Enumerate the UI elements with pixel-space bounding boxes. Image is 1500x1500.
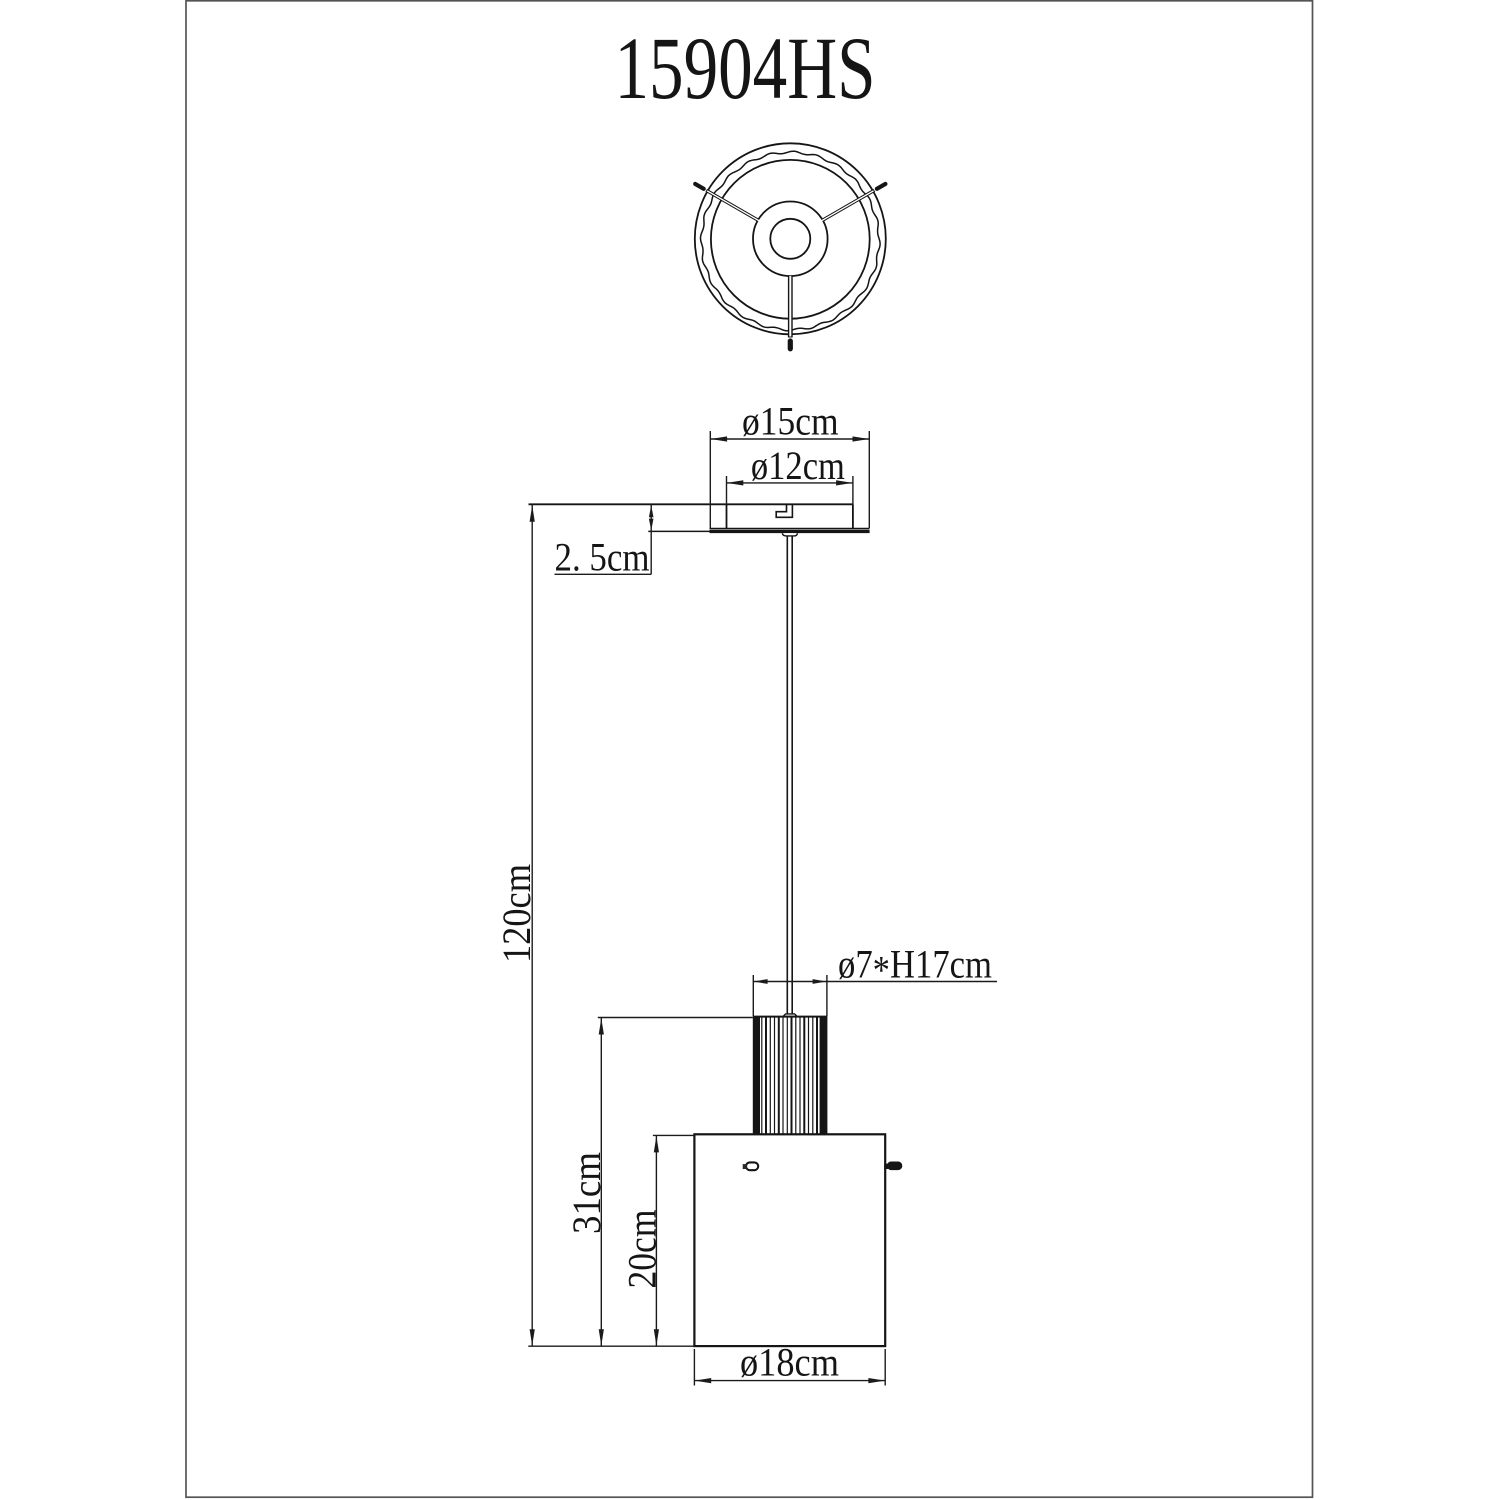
svg-text:ø7*H17cm: ø7*H17cm: [838, 941, 992, 992]
svg-text:31cm: 31cm: [564, 1152, 609, 1234]
svg-text:ø12cm: ø12cm: [751, 443, 845, 488]
svg-text:ø18cm: ø18cm: [740, 1340, 839, 1385]
svg-text:20cm: 20cm: [620, 1210, 665, 1289]
svg-text:2. 5cm: 2. 5cm: [555, 535, 650, 580]
svg-text:ø15cm: ø15cm: [742, 398, 839, 443]
svg-text:120cm: 120cm: [494, 864, 539, 963]
svg-text:15904HS: 15904HS: [615, 20, 876, 118]
